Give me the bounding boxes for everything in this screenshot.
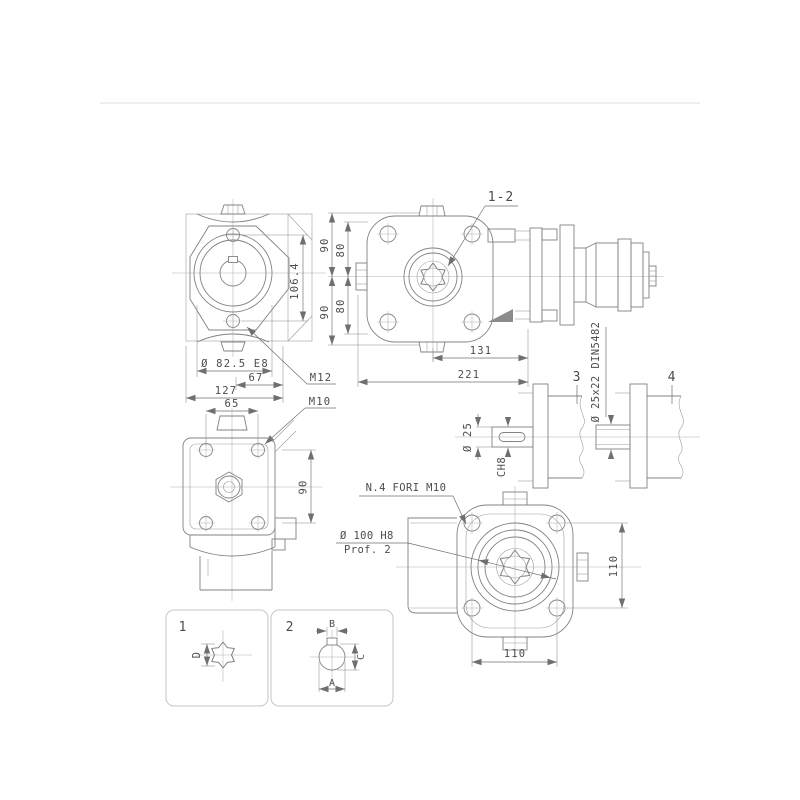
dim-221: 221 xyxy=(458,369,481,381)
housing-curve xyxy=(190,547,275,556)
callout-bore: Ø 100 H8 xyxy=(340,530,394,542)
bottom-view: 110 110 N.4 FORI M10 Ø 100 H8 Prof. 2 xyxy=(336,482,641,667)
keyway xyxy=(229,257,238,263)
dim-127: 127 xyxy=(215,385,238,397)
dim-90: 90 xyxy=(298,479,310,494)
drain-mark xyxy=(488,309,513,322)
top-lug xyxy=(419,206,445,216)
callout-m10: M10 xyxy=(309,396,332,408)
detail-1-label: 1 xyxy=(179,620,188,635)
shaft-flange xyxy=(560,225,574,325)
flange xyxy=(630,384,647,488)
input-flange-edge xyxy=(408,518,457,613)
flange-outline xyxy=(190,226,289,330)
spline-spec: Ø 25x22 DIN5482 xyxy=(590,322,602,423)
dim-131: 131 xyxy=(470,345,493,357)
dim-b: B xyxy=(329,619,335,630)
keyway xyxy=(327,638,337,645)
top-view: 90 xyxy=(170,408,322,601)
dim-90-top: 90 xyxy=(319,237,331,252)
detail-panel-1: 1 D xyxy=(166,610,268,706)
callout-1-2: 1-2 xyxy=(488,190,514,205)
dim-flange: Ø 82.5 E8 xyxy=(201,358,269,370)
drawing-page: 106.4 Ø 82.5 E8 67 127 65 M12 M10 xyxy=(0,0,800,800)
callout-m12: M12 xyxy=(310,372,333,384)
front-view: 1-2 xyxy=(356,190,530,362)
shaft-option-3: 3 Ø 25 CH8 xyxy=(462,370,584,488)
shaft-ring xyxy=(618,239,631,311)
dim-c: C xyxy=(356,654,367,660)
label-4: 4 xyxy=(668,370,677,385)
mount-plate xyxy=(530,228,542,322)
flange xyxy=(533,384,548,488)
dim-d: D xyxy=(191,652,203,659)
dim-80-bottom: 80 xyxy=(335,298,347,313)
detail-panel-2: 2 B C A xyxy=(271,610,393,706)
shaft-cylinder xyxy=(596,243,618,307)
dim-110-h: 110 xyxy=(504,648,527,660)
mount-face xyxy=(183,438,275,535)
dim-67: 67 xyxy=(248,372,263,384)
shaft-option-4: Ø 25x22 DIN5482 4 xyxy=(590,322,683,488)
housing-outline xyxy=(367,216,493,342)
left-view-dimensions: Ø 82.5 E8 67 127 65 xyxy=(186,305,283,446)
dim-d25: Ø 25 xyxy=(462,422,474,452)
callout-ch8: CH8 xyxy=(496,457,508,477)
dim-110-v: 110 xyxy=(608,555,620,578)
front-view-width-dims: 131 221 xyxy=(358,295,528,387)
detail-2-label: 2 xyxy=(286,620,295,635)
dim-80-top: 80 xyxy=(335,242,347,257)
bottom-lug xyxy=(419,342,445,352)
callout-depth: Prof. 2 xyxy=(344,544,391,556)
thread-callouts: M12 M10 xyxy=(247,327,336,444)
output-shaft-view xyxy=(530,225,656,325)
dim-a: A xyxy=(329,678,335,689)
callout-holes: N.4 FORI M10 xyxy=(366,482,447,494)
dim-90-bottom: 90 xyxy=(319,304,331,319)
left-side-view: 106.4 xyxy=(172,199,326,357)
dim-106-4: 106.4 xyxy=(289,262,301,300)
label-3: 3 xyxy=(573,370,582,385)
technical-drawing: 106.4 Ø 82.5 E8 67 127 65 M12 M10 xyxy=(0,0,800,800)
